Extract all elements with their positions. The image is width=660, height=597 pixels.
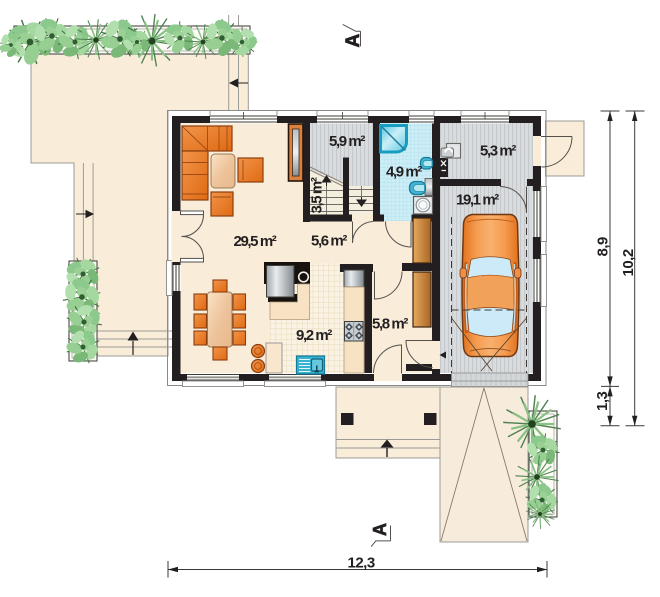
svg-text:1,3: 1,3 (594, 391, 611, 411)
svg-text:A: A (370, 523, 390, 536)
svg-text:29,5 m²: 29,5 m² (234, 233, 277, 250)
svg-text:4,9 m²: 4,9 m² (386, 164, 422, 181)
svg-text:3,5 m²: 3,5 m² (309, 177, 326, 213)
svg-text:A: A (343, 34, 364, 48)
svg-text:5,6 m²: 5,6 m² (311, 233, 347, 250)
svg-text:12,3: 12,3 (348, 555, 375, 572)
svg-text:10,2: 10,2 (620, 249, 637, 276)
svg-text:9,2 m²: 9,2 m² (296, 327, 332, 344)
svg-text:5,8 m²: 5,8 m² (372, 316, 408, 333)
svg-text:5,9 m²: 5,9 m² (329, 133, 365, 150)
svg-text:5,3 m²: 5,3 m² (480, 143, 516, 160)
svg-text:8,9: 8,9 (595, 237, 612, 257)
svg-text:19,1 m²: 19,1 m² (456, 192, 499, 209)
